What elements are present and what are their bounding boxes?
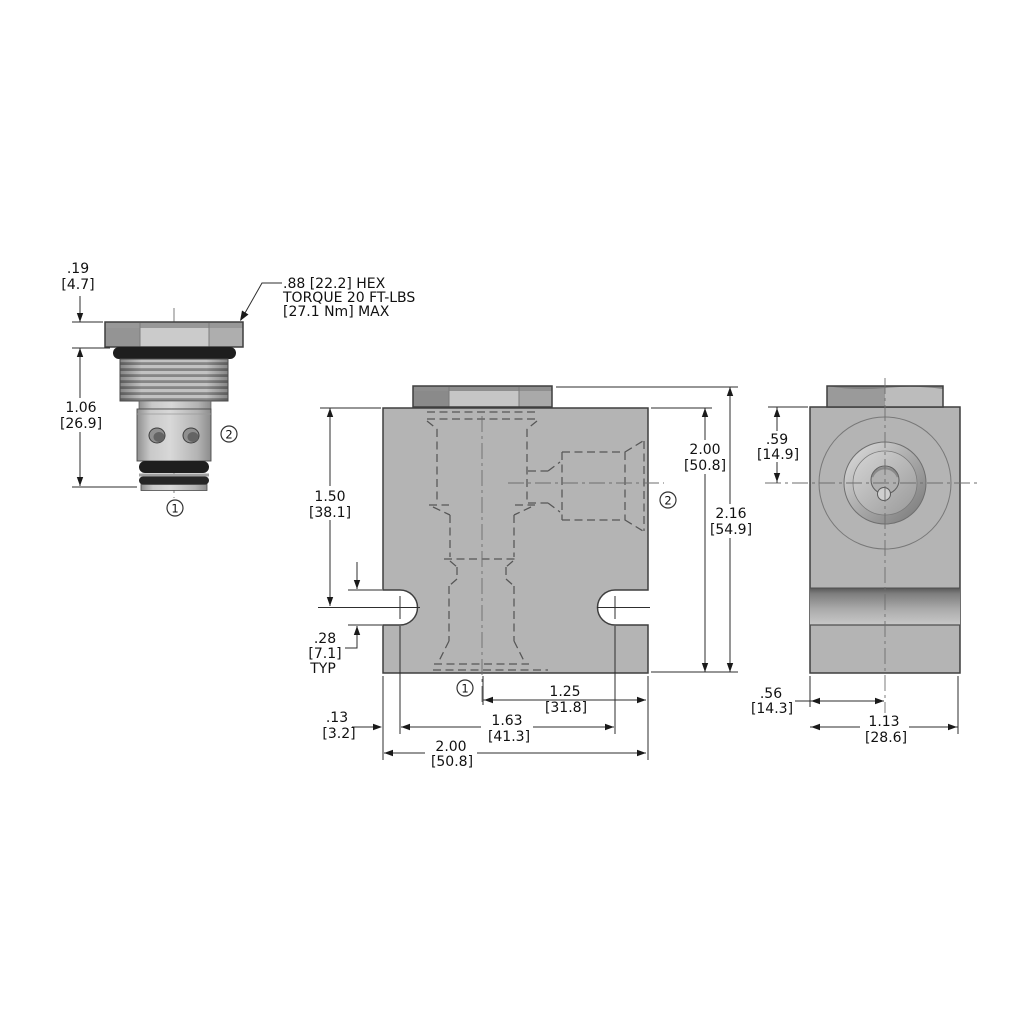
hex-torque-callout: .88 [22.2] HEX TORQUE 20 FT-LBS [27.1 Nm… (240, 276, 415, 321)
dim-valve-length-mm: [26.9] (60, 416, 102, 432)
bore-notch (878, 488, 891, 501)
valve-body (137, 409, 211, 461)
dim-port-center-mm: [31.8] (545, 700, 587, 716)
dim-overall-height-in: 2.16 (715, 506, 746, 522)
dim-edge-offset-mm: [3.2] (322, 726, 355, 742)
valve-threads (120, 359, 228, 401)
dim-slot-width-in: .28 (314, 631, 336, 647)
valve-lower-seals (139, 461, 209, 491)
dim-port-depth-in: .59 (766, 432, 788, 448)
dim-depth-mm: [28.6] (865, 730, 907, 746)
dim-block-height-mm: [50.8] (684, 458, 726, 474)
callout-line3: [27.1 Nm] MAX (283, 304, 390, 320)
dim-valve-length-in: 1.06 (65, 400, 96, 416)
dim-overall-height-mm: [54.9] (710, 522, 752, 538)
dim-slot-width-mm: [7.1] (308, 646, 341, 662)
dim-block-height-in: 2.00 (689, 442, 720, 458)
svg-text:2: 2 (225, 428, 232, 442)
dim-slot-span-in: 1.63 (491, 713, 522, 729)
cross-hole-left-bore (154, 432, 165, 442)
dim-hex-height-in: .19 (67, 261, 89, 277)
balloon-port1-valve: 1 (167, 500, 183, 516)
svg-text:1: 1 (171, 502, 178, 516)
cross-hole-right-bore (188, 432, 199, 442)
svg-text:1: 1 (461, 682, 468, 696)
valve-neck (139, 401, 211, 409)
dim-center-offset-mm: [14.3] (751, 701, 793, 717)
front-hex-head (413, 386, 552, 407)
technical-drawing: .19 [4.7] 1.06 [26.9] .88 [22.2] HEX TOR… (0, 0, 1024, 1024)
dim-slot-width-note: TYP (309, 661, 336, 677)
dim-block-width-in: 2.00 (435, 739, 466, 755)
svg-text:2: 2 (664, 494, 671, 508)
valve-hex-head (105, 322, 243, 347)
dim-hex-height-mm: [4.7] (61, 277, 94, 293)
manifold-front-view: 1.50 [38.1] .28 [7.1] TYP 2.00 [50.8] 2.… (306, 386, 756, 770)
dim-port-depth-mm: [14.9] (757, 447, 799, 463)
manifold-block (383, 408, 648, 673)
valve-top-oring (113, 347, 236, 359)
dim-port-center-in: 1.25 (549, 684, 580, 700)
dim-edge-offset-in: .13 (326, 710, 348, 726)
manifold-side-view: .59 [14.9] .56 [14.3] 1.13 [28.6] (751, 378, 978, 746)
cartridge-valve-view: .19 [4.7] 1.06 [26.9] .88 [22.2] HEX TOR… (59, 261, 415, 516)
balloon-port1-front: 1 (457, 680, 473, 696)
dim-slot-span-mm: [41.3] (488, 729, 530, 745)
dim-depth-in: 1.13 (868, 714, 899, 730)
drawing-canvas: .19 [4.7] 1.06 [26.9] .88 [22.2] HEX TOR… (0, 0, 1024, 1024)
balloon-port2-valve: 2 (221, 426, 237, 442)
dim-slot-depth-mm: [38.1] (309, 505, 351, 521)
balloon-port2-front: 2 (660, 492, 676, 508)
dim-slot-depth-in: 1.50 (314, 489, 345, 505)
dim-center-offset-in: .56 (760, 686, 782, 702)
dim-block-width-mm: [50.8] (431, 754, 473, 770)
